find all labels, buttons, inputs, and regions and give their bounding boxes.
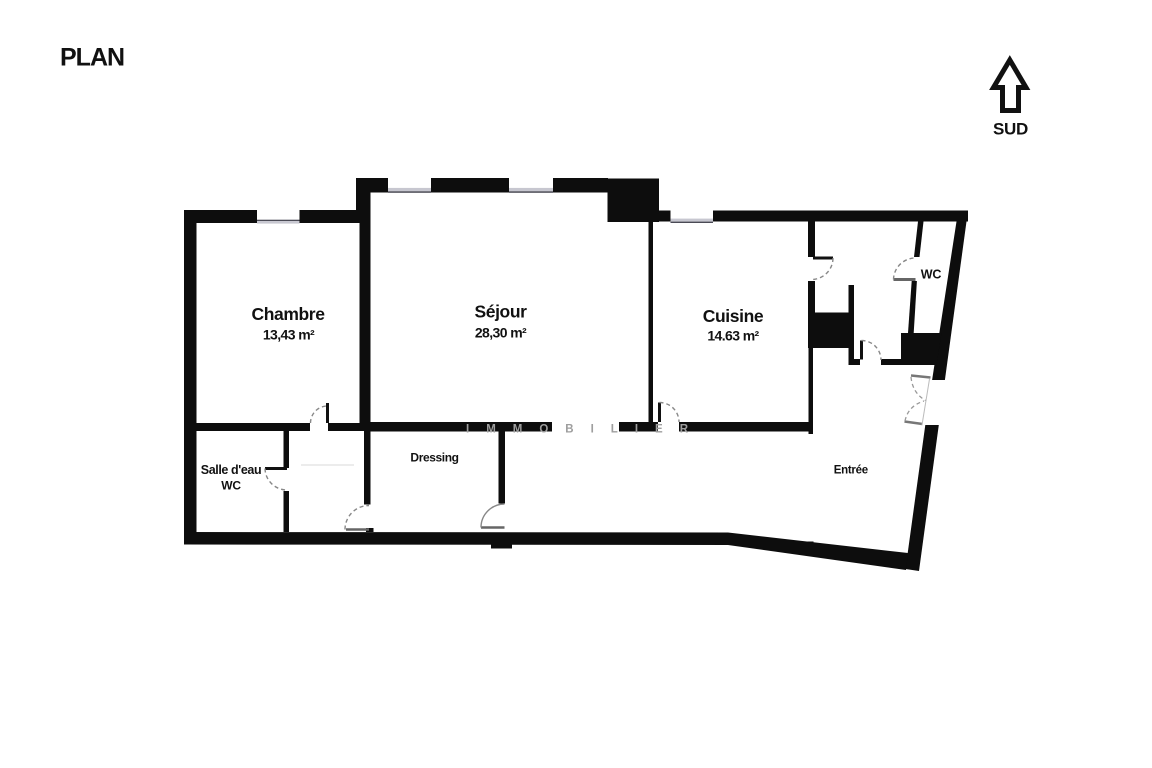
svg-text:Séjour: Séjour [474, 302, 527, 322]
svg-text:Chambre: Chambre [251, 304, 325, 324]
svg-text:Dressing: Dressing [410, 451, 458, 465]
svg-text:SUD: SUD [993, 120, 1028, 139]
svg-text:WC: WC [221, 479, 241, 493]
svg-text:Salle d'eau: Salle d'eau [201, 463, 261, 477]
svg-text:Entrée: Entrée [834, 465, 868, 477]
svg-text:13,43 m²: 13,43 m² [263, 327, 315, 343]
svg-text:WC: WC [921, 267, 942, 281]
svg-text:28,30 m²: 28,30 m² [475, 325, 527, 341]
svg-text:14.63 m²: 14.63 m² [707, 328, 759, 344]
svg-text:IMMOBILIER: IMMOBILIER [466, 424, 705, 436]
svg-text:Cuisine: Cuisine [703, 306, 764, 326]
svg-text:PLAN: PLAN [60, 44, 124, 72]
